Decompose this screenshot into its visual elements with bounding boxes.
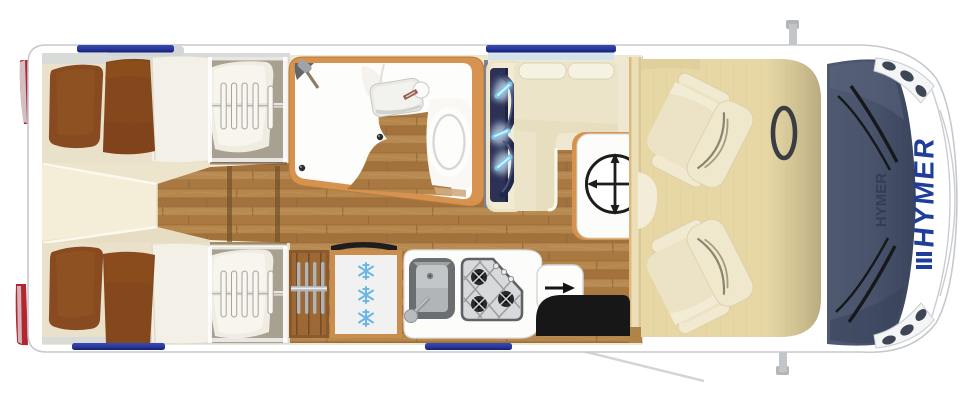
svg-text:HYMER: HYMER [873, 173, 890, 227]
svg-text:HYMER: HYMER [909, 135, 940, 249]
